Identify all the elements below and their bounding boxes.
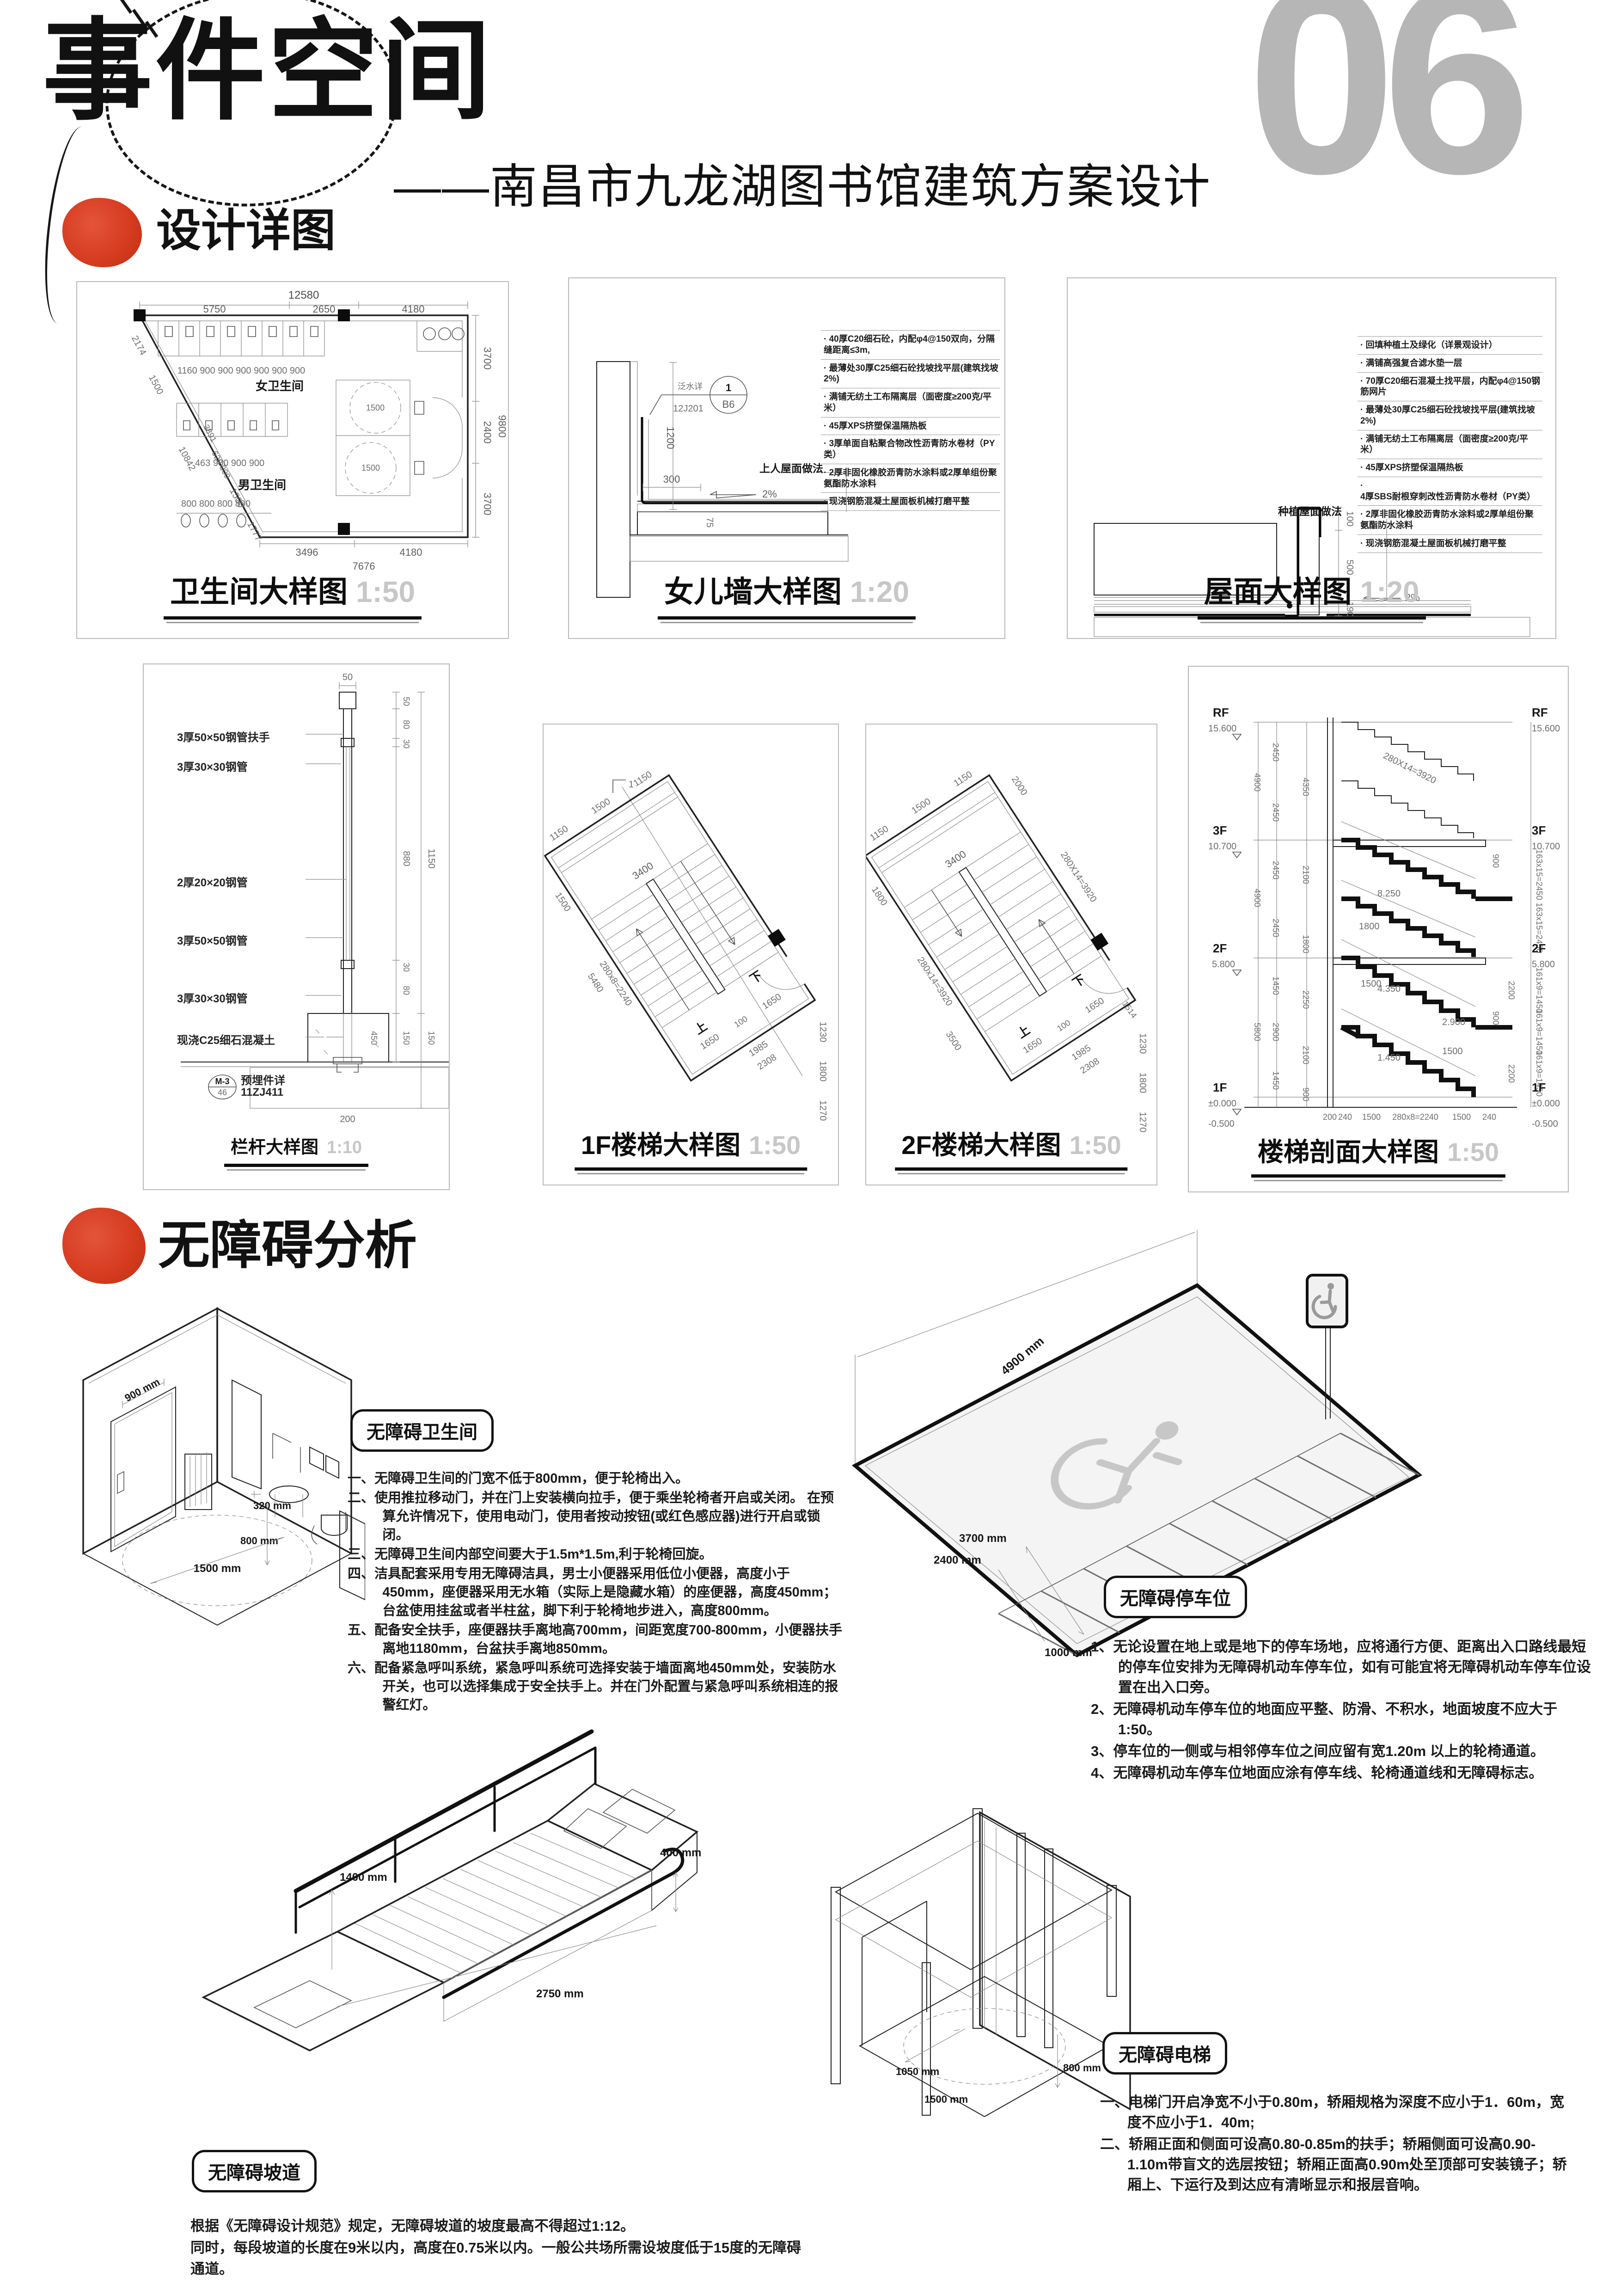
drawing-title-text: 女儿墙大样图 [664,575,842,608]
dim-label: 1800 [1301,935,1310,953]
railing-label: 现浇C25细石混凝土 [177,1031,275,1047]
railing-label: 3厚30×30钢管 [177,989,248,1006]
dim-label: 5480 [586,971,606,994]
ref-code: 12J201 [673,404,703,414]
dim-label: 1050 mm [896,2066,939,2077]
dim-label: 2450 [1271,919,1280,937]
drawing-title-text: 楼梯剖面大样图 [1258,1137,1439,1166]
note-item: 一、无障碍卫生间的门宽不低于800mm，便于轮椅出入。 [348,1469,842,1488]
dim-label: 1450 [1271,976,1280,995]
section-title-accessibility: 无障碍分析 [158,1220,417,1271]
stair-up-label: 上 [692,1019,710,1037]
dim-label: 150 [402,1031,411,1045]
note-row: 45厚XPS挤塑保温隔热板 [1358,459,1542,477]
dim-label: 1777 [245,520,263,543]
dim-label: 1150 [952,769,974,789]
stair-1f-drawing: 1 上 下 3400 1150 1500 1150 [544,724,838,1185]
dim-label: 50 [343,672,353,682]
note-row: 现浇钢筋混凝土屋面板机械打磨平整 [1358,535,1542,553]
dim-label: 2250 [1301,990,1310,1009]
railing-label: 2厚20×20钢管 [177,873,248,890]
anno: 1500 [1361,979,1382,989]
dim-label: 3700 [482,493,493,516]
note-item: 三、无障碍卫生间内部空间要大于1.5m*1.5m,利于轮椅回旋。 [348,1545,842,1564]
dim-label: 463 900 900 900 [195,458,264,468]
dim-label: 900 [1301,1087,1310,1101]
dim-label: 3496 [296,546,318,558]
dim-label: 4180 [400,546,422,558]
dim-label: 2100 [1301,1046,1310,1064]
iso-accessible-toilet: 900 mm 320 mm 800 mm 1500 mm [69,1295,365,1632]
page-title: 事件空间 [43,17,494,127]
dim-label: 2650 [313,303,336,315]
dim-label: 4900 [1253,889,1262,907]
panel-parapet-detail: 2% 300 1200 75 1 B6 12J201 泛水详 40厚C20细石砼… [568,277,1005,639]
dim-label: 30 [402,739,411,749]
dim-label: 2450 [1271,803,1280,822]
level-name: 1F [1532,1080,1546,1094]
dim-label: 450 [369,1031,379,1045]
level-name: 3F [1213,823,1227,837]
dim-label: 75 [704,517,715,528]
page-number: 06 [1247,0,1517,214]
dim-label: 1500 mm [194,1562,241,1575]
drawing-title-text: 卫生间大样图 [170,575,348,608]
badge-accessible-ramp: 无障碍坡道 [192,2150,317,2192]
note-item: 1、无论设置在地上或是地下的停车场地，应将通行方便、距离出入口路线最短的停车位安… [1091,1637,1595,1698]
railing-label: 11ZJ411 [241,1086,283,1099]
dim-label: 80 [402,720,411,729]
anno: 900 [1491,1011,1500,1025]
dim-label: 3400 [943,848,968,870]
level-name: 3F [1532,823,1546,837]
level-name: 1F [1213,1080,1227,1094]
dim-label: 100 [733,1014,749,1029]
dim-label: 9800 [496,415,508,438]
dim-label: 1650 [760,992,783,1012]
panel-stair-2f: 上 下 3400 1150 1500 1150 2000 280X14=3920… [865,724,1157,1185]
level-name: RF [1532,706,1548,719]
room-label-female: 女卫生间 [256,379,304,393]
anno: 900 [1491,854,1500,868]
level-elev: -0.500 [1208,1119,1235,1129]
dim-label: 1270 [1138,1112,1148,1133]
dim-label: 1500 [589,796,612,816]
dim-label: 1230 [818,1022,828,1043]
note-row: 回填种植土及绿化（详景观设计） [1358,337,1542,355]
note-item: 五、配备安全扶手，座便器扶手离地高700mm，间距宽度700-800mm，小便器… [348,1621,842,1658]
dim-label: 1500 [1452,1112,1471,1122]
anno: 2200 [1507,981,1516,1000]
drawing-title: 2F楼梯大样图1:50 [895,1124,1127,1171]
dim-label: 2400 [482,421,493,444]
dim-label: 150 [427,1031,436,1045]
dim-label: 1450 [1271,1071,1280,1090]
accessible-elevator-notes: 一、电梯门开启净宽不小于0.80m，轿厢规格为深度不应小于1．60m，宽度不应小… [1100,2092,1572,2197]
dim-label: 161x9=1450 [1535,1009,1544,1055]
accessible-ramp-notes: 根据《无障碍设计规范》规定，无障碍坡道的坡度最高不得超过1:12。 同时，每段坡… [190,2216,810,2280]
drawing-title-text: 屋面大样图 [1204,575,1352,608]
stair-section-drawing: 280X14=3920 1800 8.250 4.350 2.900 1.450… [1189,667,1568,1191]
drawing-title-text: 栏杆大样图 [231,1138,318,1157]
dim-label: 100 [1345,511,1355,526]
drawing-title: 屋面大样图1:20 [1197,568,1425,620]
roof-system-label: 种植屋面做法 [1278,503,1342,518]
dim-label: 50 [402,697,411,706]
anno: 2.900 [1442,1017,1465,1027]
dim-label: 280x8=2240 [1392,1112,1438,1122]
note-row: 40厚C20细石砼，内配φ4@150双向，分隔缝距离≤3m, [821,331,1000,360]
note-item: 一、电梯门开启净宽不小于0.80m，轿厢规格为深度不应小于1．60m，宽度不应小… [1100,2092,1572,2133]
note-item: 2、无障碍机动车停车位的地面应平整、防滑、不积水，地面坡度不应大于1:50。 [1091,1699,1595,1740]
note-row: 45厚XPS挤塑保温隔热板 [821,417,1000,436]
dim-label: 2308 [756,1052,778,1072]
dim-label: 2308 [1078,1056,1101,1076]
dim-label: 2450 [1271,861,1280,879]
dim-label: 1200 [665,427,676,449]
panel-roof-detail: 100 500 190 2% 回填种植土及绿化（详景观设计） 满铺高强复合滤水垫… [1067,277,1556,639]
note-row: 2厚非固化橡胶沥青防水涂料或2厚单组份聚氨酯防水涂料 [821,464,1000,493]
dim-label: 2450 [1271,743,1280,761]
level-elev: ±0.000 [1532,1099,1560,1109]
dim-label: 1650 [1083,995,1106,1015]
level-elev: 10.700 [1532,841,1560,852]
dim-label: 3400 [630,859,655,882]
dim-label: 3700 mm [959,1532,1007,1545]
note-line: 根据《无障碍设计规范》规定，无障碍坡道的坡度最高不得超过1:12。 [190,2216,810,2237]
level-name: 2F [1213,941,1227,955]
ref-number: 46 [218,1088,227,1097]
flight-note: 280X14=3920 [1382,750,1437,786]
note-row: 最薄处30厚C25细石砼找坡找平层(建筑找坡2%) [821,360,1000,389]
dim-label: 1150 [548,824,570,843]
dim-label: 280X14=3920 [1058,850,1099,904]
dim-label: 400 mm [660,1847,701,1859]
drawing-scale: 1:20 [850,575,909,608]
dim-label: 880 [401,851,411,866]
note-item: 3、停车位的一侧或与相邻停车位之间应留有宽1.20m 以上的轮椅通道。 [1091,1741,1595,1762]
level-elev: 10.700 [1208,841,1236,852]
dim-label: 800 800 800 800 [181,499,251,509]
dim-label: 2100 [1301,866,1310,884]
construction-notes-parapet: 40厚C20细石砼，内配φ4@150双向，分隔缝距离≤3m, 最薄处30厚C25… [821,330,1000,511]
note-row: 70厚C20细石混凝土找平层，内配φ4@150钢筋网片 [1358,373,1542,402]
dim-label: 80 [402,986,411,995]
section-title-details: 设计详图 [156,208,336,253]
turn-circle-label: 1500 [361,463,380,473]
anno: 1.450 [1377,1053,1401,1063]
stair-up-label: 上 [1015,1023,1032,1041]
drawing-title-text: 1F楼梯大样图 [581,1130,740,1160]
note-item: 二、轿厢正面和侧面可设高0.80-0.85m的扶手；轿厢侧面可设高0.90-1.… [1100,2134,1572,2195]
dim-label: 1230 [1138,1033,1148,1054]
panel-stair-section: 280X14=3920 1800 8.250 4.350 2.900 1.450… [1188,666,1569,1192]
note-row: 满铺无纺土工布隔离层（面密度≥200克/平米） [1358,430,1542,460]
iso-accessible-ramp: 1400 mm 400 mm 2750 mm [185,1674,712,2081]
level-elev: ±0.000 [1208,1099,1236,1109]
presentation-board: 事件空间 ——南昌市九龙湖图书馆建筑方案设计 06 设计详图 [0,0,1621,2296]
level-elev: -0.500 [1532,1119,1558,1129]
anno: 1500 [1442,1046,1463,1056]
dim-label: 1150 [426,848,436,868]
dim-label: 1500 [910,796,932,816]
slope-label: 2% [762,488,777,500]
anno: 2200 [1507,1064,1516,1083]
dim-label: 240 [1338,1112,1352,1122]
drawing-title-text: 2F楼梯大样图 [901,1130,1061,1160]
dim-label: 240 [1482,1112,1496,1122]
railing-label: 3厚50×50钢管 [177,932,248,948]
note-row: 最薄处30厚C25细石砼找坡找平层(建筑找坡2%) [1358,401,1542,430]
dim-label: 1400 mm [340,1871,387,1884]
dim-label: 1500 [147,373,165,396]
drawing-scale: 1:50 [1447,1137,1499,1166]
anno: 8.250 [1377,889,1401,899]
dim-label: 2900 [1271,1023,1280,1041]
panel-toilet-plan: 12580 5750 2650 4180 3700 2400 3700 9800… [76,281,509,639]
railing-label: 预埋件详 [241,1071,285,1087]
dim-label: 161x9=1450 [1535,967,1544,1013]
dim-label: 1800 [1138,1073,1148,1093]
ref-cell: B6 [722,399,735,410]
dim-label: 200 [1323,1112,1337,1122]
note-row: 3厚单面自粘聚合物改性沥青防水卷材（PY类） [821,435,1000,464]
dim-label: 3700 [482,347,493,370]
dim-label: 2400 mm [934,1554,981,1566]
construction-notes-roof: 回填种植土及绿化（详景观设计） 满铺高强复合滤水垫一层 70厚C20细石混凝土找… [1358,336,1542,553]
dim-label: 320 mm [253,1500,291,1511]
dim-label: 1160 900 900 900 900 900 900 [177,366,306,376]
drawing-title: 栏杆大样图1:10 [224,1133,368,1167]
panel-railing-detail: 50 50 80 30 880 1150 30 80 150 150 450 2… [143,663,450,1190]
dim-label: 4900 [1253,773,1262,792]
railing-label: 3厚50×50钢管扶手 [177,728,270,744]
dim-label: 163x15=2450 [1535,849,1544,900]
ref-number: 1 [726,382,731,393]
dim-label: 4350 [1301,778,1310,796]
level-name: RF [1213,706,1229,719]
dim-label: 800 mm [1063,2062,1101,2074]
note-item: 四、洁具配套采用专用无障碍洁具，男士小便器采用低位小便器，高度小于450mm，座… [348,1565,842,1620]
dim-label: 4180 [402,303,425,315]
dim-label: 1270 [818,1100,828,1121]
drawing-title: 楼梯剖面大样图1:50 [1251,1131,1505,1178]
drawing-scale: 1:20 [1360,575,1419,608]
dim-label: 800 mm [240,1535,278,1547]
red-ink-blob-icon [62,1208,146,1284]
stair-2f-drawing: 上 下 3400 1150 1500 1150 2000 280X14=3920… [866,724,1156,1185]
ref-tag: M-3 [215,1077,230,1086]
dim-label: 900 mm [123,1376,162,1404]
page-subtitle: ——南昌市九龙湖图书馆建筑方案设计 [394,149,1211,217]
dim-label: 5750 [203,303,226,315]
level-name: 2F [1532,941,1546,955]
dim-label: 200 [340,1114,355,1124]
panel-stair-1f: 1 上 下 3400 1150 1500 1150 [543,724,839,1185]
dim-label: 12580 [288,289,319,301]
note-row: 满铺高强复合滤水垫一层 [1358,355,1542,373]
roof-system-label: 上人屋面做法 [759,460,823,475]
anno: 1800 [1359,921,1380,932]
note-row: 2厚非固化橡胶沥青防水涂料或2厚单组份聚氨酯防水涂料 [1358,506,1542,535]
badge-accessible-elevator: 无障碍电梯 [1102,2032,1227,2075]
dim-label: 2750 mm [536,1988,584,2000]
drawing-scale: 1:50 [1070,1130,1121,1160]
drawing-scale: 1:50 [749,1130,801,1160]
level-elev: 5.800 [1532,959,1555,970]
level-elev: 15.600 [1208,724,1236,734]
level-elev: 15.600 [1532,724,1560,734]
note-row: 4厚SBS耐根穿刺改性沥青防水卷材（PY类） [1358,477,1542,506]
level-elev: 5.800 [1212,959,1235,970]
badge-accessible-parking: 无障碍停车位 [1104,1576,1247,1618]
dim-label: 1500 [1362,1112,1381,1122]
iso-accessible-elevator: 1050 mm 1500 mm 800 mm [786,1785,1146,2178]
red-ink-blob-icon [62,198,142,267]
dim-label: 2174 [129,334,148,357]
drawing-scale: 1:50 [356,575,415,608]
note-item: 4、无障碍机动车停车位地面应涂有停车线、轮椅通道线和无障碍标志。 [1091,1763,1595,1783]
dim-label: 5800 [1253,1023,1262,1041]
dim-label: 1500 mm [924,2093,968,2105]
dim-label: 100 [1055,1018,1072,1033]
dim-label: 2000 [1009,774,1029,797]
badge-accessible-toilet: 无障碍卫生间 [350,1409,494,1452]
dim-label: 10842 [177,445,198,472]
dim-label: 1514 [1120,999,1138,1019]
dim-label: 30 [402,963,411,972]
ref-flashing: 泛水详 [678,382,703,391]
dim-label: 1800 [818,1061,828,1082]
note-item: 二、使用推拉移动门，并在门上安装横向拉手，便于乘坐轮椅者开启或关闭。 在预算允许… [348,1489,842,1544]
railing-label: 3厚30×30钢管 [177,758,248,774]
room-label-male: 男卫生间 [238,478,286,492]
drawing-title: 1F楼梯大样图1:50 [575,1124,807,1171]
dim-label: 1150 [632,769,654,789]
accessible-parking-notes: 1、无论设置在地上或是地下的停车场地，应将通行方便、距离出入口路线最短的停车位安… [1091,1637,1595,1785]
drawing-title: 女儿墙大样图1:20 [658,568,916,620]
note-line: 同时，每段坡道的长度在9米以内，高度在0.75米以内。一般公共场所需设坡度低于1… [190,2237,810,2280]
dim-label: 3500 [944,1030,964,1052]
note-row: 现浇钢筋混凝土屋面板机械打磨平整 [821,493,1000,511]
dim-label: 300 [663,473,680,485]
note-row: 满铺无纺土工布隔离层（面密度≥200克/平米） [821,388,1000,417]
dim-label: 1985 [1070,1043,1093,1063]
drawing-scale: 1:10 [327,1138,362,1157]
dim-label: 1000 mm [1045,1646,1092,1659]
dim-label: 1150 [868,824,890,843]
drawing-title: 卫生间大样图1:50 [164,568,422,620]
turn-circle-label: 1500 [366,403,385,412]
